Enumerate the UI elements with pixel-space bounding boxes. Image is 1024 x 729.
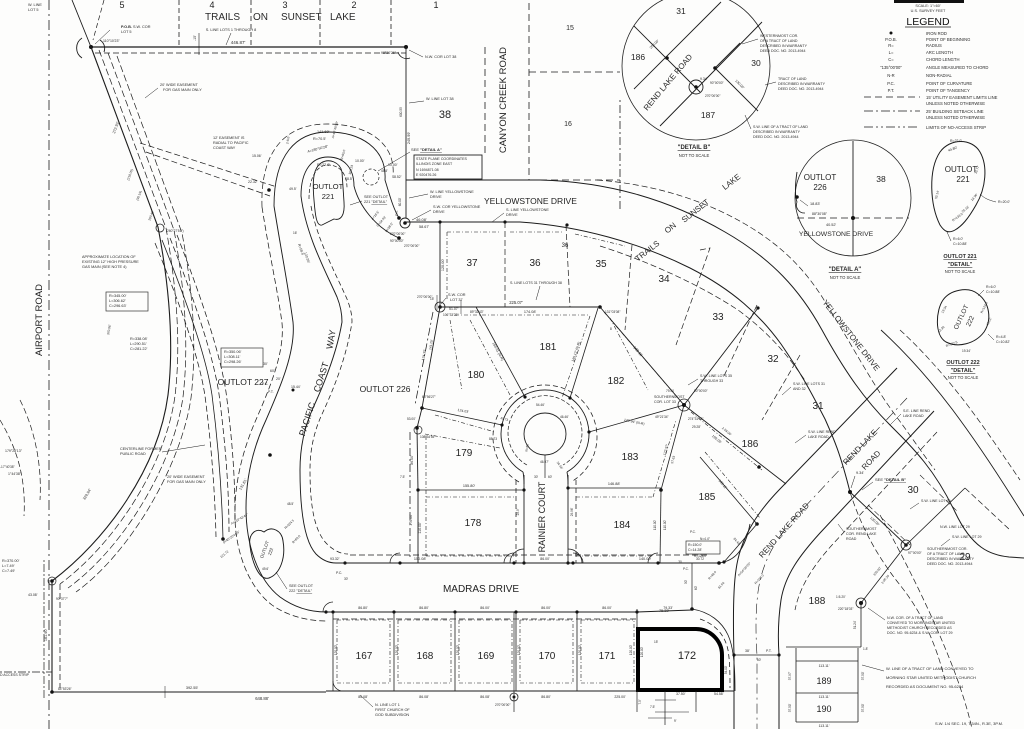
svg-text:L=306.62': L=306.62' bbox=[109, 299, 126, 303]
svg-text:P.T.: P.T. bbox=[395, 210, 399, 216]
svg-text:DEED DOC. NO. 2013-4944: DEED DOC. NO. 2013-4944 bbox=[753, 135, 799, 139]
svg-text:86.08': 86.08' bbox=[419, 695, 429, 699]
svg-text:120.00': 120.00' bbox=[640, 646, 644, 657]
svg-text:NOT TO SCALE: NOT TO SCALE bbox=[679, 153, 710, 158]
svg-text:DEED DOC. NO. 2013-4944: DEED DOC. NO. 2013-4944 bbox=[760, 49, 806, 53]
svg-text:171: 171 bbox=[599, 651, 616, 662]
svg-text:"DETAIL A": "DETAIL A" bbox=[829, 267, 862, 273]
svg-text:86.00': 86.00' bbox=[541, 606, 551, 610]
svg-text:WESTERNMOST COR.: WESTERNMOST COR. bbox=[760, 34, 798, 38]
svg-text:NOT TO SCALE: NOT TO SCALE bbox=[830, 275, 861, 280]
svg-text:222 "DETAIL": 222 "DETAIL" bbox=[289, 589, 313, 593]
svg-text:98°30'26": 98°30'26" bbox=[381, 51, 397, 55]
svg-text:90°00'00": 90°00'00" bbox=[694, 389, 708, 393]
svg-text:S.W. LINE REND: S.W. LINE REND bbox=[808, 430, 836, 434]
svg-text:51.24': 51.24' bbox=[853, 620, 857, 629]
svg-text:N. LINE LOT 1: N. LINE LOT 1 bbox=[375, 703, 400, 707]
svg-text:120.00': 120.00' bbox=[578, 644, 582, 655]
svg-text:TRACT OF LAND: TRACT OF LAND bbox=[778, 77, 807, 81]
svg-text:186: 186 bbox=[631, 52, 645, 62]
svg-text:OUTLOT 222: OUTLOT 222 bbox=[946, 360, 979, 366]
svg-text:46.08': 46.08' bbox=[416, 217, 427, 222]
svg-text:7.5': 7.5' bbox=[650, 705, 655, 709]
svg-text:120.00': 120.00' bbox=[517, 644, 521, 655]
svg-text:OUTLOT 226: OUTLOT 226 bbox=[360, 384, 411, 394]
svg-text:86.00': 86.00' bbox=[480, 606, 490, 610]
svg-text:DOC. NO. 95-6234 & S.W. COR. L: DOC. NO. 95-6234 & S.W. COR. LOT 29 bbox=[887, 631, 952, 635]
svg-text:7.5': 7.5' bbox=[638, 699, 642, 704]
svg-text:COAST WAY: COAST WAY bbox=[213, 146, 236, 150]
svg-text:225.07': 225.07' bbox=[509, 300, 523, 305]
svg-text:R=150.0': R=150.0' bbox=[688, 543, 702, 547]
svg-text:4: 4 bbox=[209, 0, 214, 10]
svg-text:90°00'00": 90°00'00" bbox=[390, 239, 404, 243]
svg-text:LAKE ROAD: LAKE ROAD bbox=[903, 414, 924, 418]
svg-text:C=10.88': C=10.88' bbox=[986, 290, 1000, 294]
svg-text:C=: C= bbox=[888, 57, 894, 62]
svg-text:37.50': 37.50' bbox=[861, 671, 865, 680]
svg-text:221: 221 bbox=[322, 192, 335, 201]
svg-text:PUBLIC ROAD: PUBLIC ROAD bbox=[120, 452, 146, 456]
svg-text:184: 184 bbox=[614, 520, 631, 531]
svg-text:180: 180 bbox=[468, 370, 485, 381]
svg-text:AND 32: AND 32 bbox=[793, 387, 806, 391]
svg-text:31: 31 bbox=[812, 401, 824, 412]
svg-text:CONVEYED TO MORNINGSTAR UNITED: CONVEYED TO MORNINGSTAR UNITED bbox=[887, 621, 955, 625]
svg-text:270°00'00": 270°00'00" bbox=[417, 295, 432, 299]
svg-text:34: 34 bbox=[658, 274, 670, 285]
svg-text:37.50': 37.50' bbox=[676, 692, 686, 696]
svg-text:58.67': 58.67' bbox=[419, 225, 430, 229]
svg-text:C=7.49': C=7.49' bbox=[2, 569, 15, 573]
svg-text:249.99': 249.99' bbox=[407, 132, 411, 145]
svg-text:P.C.: P.C. bbox=[336, 571, 342, 575]
svg-text:150.08': 150.08' bbox=[414, 557, 427, 561]
svg-text:45.5': 45.5' bbox=[381, 169, 388, 173]
svg-text:DRIVE: DRIVE bbox=[506, 213, 518, 217]
svg-text:CHORD LENGTH: CHORD LENGTH bbox=[926, 57, 960, 62]
svg-text:N-R: N-R bbox=[887, 73, 894, 78]
svg-text:110.00': 110.00' bbox=[663, 520, 667, 531]
svg-text:167: 167 bbox=[356, 651, 373, 662]
svg-text:MADRAS DRIVE: MADRAS DRIVE bbox=[443, 584, 519, 595]
svg-text:31: 31 bbox=[676, 6, 686, 16]
svg-text:120.00': 120.00' bbox=[395, 644, 399, 655]
svg-text:W. LINE OF A TRACT OF LAND CON: W. LINE OF A TRACT OF LAND CONVEYED TO bbox=[886, 666, 974, 671]
svg-text:186: 186 bbox=[742, 439, 759, 450]
svg-text:S. LINE LOTS 31 THROUGH 38: S. LINE LOTS 31 THROUGH 38 bbox=[510, 281, 562, 285]
svg-text:120.00': 120.00' bbox=[441, 259, 445, 272]
svg-text:ON: ON bbox=[253, 12, 268, 23]
svg-text:N 1694871.08: N 1694871.08 bbox=[416, 168, 439, 172]
svg-text:648.88': 648.88' bbox=[255, 696, 269, 701]
svg-text:LOT 5: LOT 5 bbox=[121, 30, 131, 34]
svg-text:R=: R= bbox=[888, 43, 894, 48]
svg-text:110.00': 110.00' bbox=[653, 520, 657, 531]
svg-text:270°00'00": 270°00'00" bbox=[705, 94, 720, 98]
svg-text:FIRST CHURCH OF: FIRST CHURCH OF bbox=[375, 708, 410, 712]
svg-text:46.46': 46.46' bbox=[560, 415, 569, 419]
svg-text:48.5': 48.5' bbox=[287, 502, 294, 506]
svg-text:L=290.51': L=290.51' bbox=[130, 342, 147, 346]
svg-text:POINT OF CURVATURE: POINT OF CURVATURE bbox=[926, 81, 972, 86]
svg-text:ILLINOIS ZONE EAST: ILLINOIS ZONE EAST bbox=[416, 162, 453, 166]
svg-text:"DETAIL B": "DETAIL B" bbox=[678, 145, 711, 151]
svg-text:R=22.0': R=22.0' bbox=[950, 139, 962, 143]
svg-text:R=12a.0: R=12a.0 bbox=[694, 554, 706, 558]
svg-text:110.00': 110.00' bbox=[418, 522, 422, 533]
svg-text:DEED DOC. NO. 2013-4944: DEED DOC. NO. 2013-4944 bbox=[927, 562, 973, 566]
svg-text:30': 30' bbox=[344, 577, 349, 581]
svg-text:P.T.: P.T. bbox=[268, 390, 274, 394]
svg-text:176.00': 176.00' bbox=[409, 514, 413, 526]
svg-text:-15': -15' bbox=[193, 35, 197, 41]
svg-text:86.08': 86.08' bbox=[358, 695, 368, 699]
svg-text:131°03'08": 131°03'08" bbox=[605, 310, 620, 314]
svg-text:182: 182 bbox=[608, 376, 625, 387]
svg-text:89°32'43": 89°32'43" bbox=[470, 310, 484, 314]
svg-text:29.28': 29.28' bbox=[692, 425, 701, 429]
svg-text:LEGEND: LEGEND bbox=[906, 16, 950, 28]
svg-text:113.11': 113.11' bbox=[819, 664, 830, 668]
svg-text:30': 30' bbox=[263, 362, 268, 366]
svg-text:SEE "DETAIL A": SEE "DETAIL A" bbox=[411, 147, 442, 152]
svg-text:D ACCESS STRIP: D ACCESS STRIP bbox=[0, 673, 30, 677]
svg-text:20' WIDE EASEMENT: 20' WIDE EASEMENT bbox=[160, 83, 199, 87]
svg-text:RADIAL TO PACIFIC: RADIAL TO PACIFIC bbox=[213, 141, 249, 145]
svg-text:C=14.28': C=14.28' bbox=[688, 548, 702, 552]
svg-text:120.00': 120.00' bbox=[456, 644, 460, 655]
svg-text:15.44': 15.44' bbox=[291, 385, 301, 389]
svg-text:R=4.8': R=4.8' bbox=[996, 335, 1006, 339]
svg-text:FOR GAS MAIN ONLY: FOR GAS MAIN ONLY bbox=[167, 480, 206, 484]
svg-text:181: 181 bbox=[540, 342, 557, 353]
svg-text:R=20.0': R=20.0' bbox=[998, 200, 1010, 204]
svg-text:GAS MAIN (SEE NOTE 4): GAS MAIN (SEE NOTE 4) bbox=[82, 265, 127, 269]
svg-text:30: 30 bbox=[751, 58, 761, 68]
svg-text:R=6.0': R=6.0' bbox=[953, 237, 963, 241]
svg-text:RAINIER COURT: RAINIER COURT bbox=[537, 481, 547, 552]
svg-text:YELLOWSTONE DRIVE: YELLOWSTONE DRIVE bbox=[484, 196, 577, 206]
svg-text:18.83': 18.83' bbox=[810, 202, 821, 206]
svg-text:30: 30 bbox=[678, 560, 682, 564]
svg-text:35: 35 bbox=[595, 259, 607, 270]
svg-text:93.32': 93.32' bbox=[330, 557, 340, 561]
svg-text:ROAD: ROAD bbox=[846, 537, 857, 541]
svg-text:S. LINE LOTS 1 THROUGH 8: S. LINE LOTS 1 THROUGH 8 bbox=[206, 28, 257, 32]
svg-text:36: 36 bbox=[529, 258, 541, 269]
svg-text:15.06': 15.06' bbox=[252, 154, 262, 158]
svg-text:188: 188 bbox=[809, 596, 826, 607]
svg-text:DESCRIBED IN WARRANTY: DESCRIBED IN WARRANTY bbox=[778, 82, 826, 86]
svg-text:SOUTHERNMOST COR.: SOUTHERNMOST COR. bbox=[927, 547, 967, 551]
svg-text:LAKE: LAKE bbox=[330, 12, 356, 23]
svg-text:P.T.: P.T. bbox=[888, 88, 895, 93]
svg-text:90°37'7": 90°37'7" bbox=[56, 597, 68, 601]
svg-text:155.80': 155.80' bbox=[463, 484, 476, 488]
svg-text:40.52': 40.52' bbox=[826, 223, 837, 227]
svg-text:OUTLOT 221: OUTLOT 221 bbox=[943, 254, 976, 260]
svg-text:CENTERLINE FORMER: CENTERLINE FORMER bbox=[120, 447, 162, 451]
svg-text:10.00': 10.00' bbox=[355, 159, 365, 163]
svg-text:STATE PLANE COORDINATES: STATE PLANE COORDINATES bbox=[416, 157, 468, 161]
svg-text:NOT TO SCALE: NOT TO SCALE bbox=[945, 269, 976, 274]
svg-text:270°00'00": 270°00'00" bbox=[390, 232, 405, 236]
svg-text:P.O.B.: P.O.B. bbox=[885, 37, 897, 42]
svg-text:NOT TO SCALE: NOT TO SCALE bbox=[948, 375, 979, 380]
svg-text:R=370.00': R=370.00' bbox=[2, 559, 20, 563]
svg-text:ANGLE MEASURED TO CHORD: ANGLE MEASURED TO CHORD bbox=[926, 65, 988, 70]
svg-text:86.80': 86.80' bbox=[358, 606, 368, 610]
svg-text:179: 179 bbox=[456, 448, 473, 459]
svg-text:S.W. LINE OF A TRACT OF LAND: S.W. LINE OF A TRACT OF LAND bbox=[753, 125, 808, 129]
svg-text:22.32': 22.32' bbox=[248, 180, 258, 184]
svg-text:8: 8 bbox=[610, 327, 612, 331]
svg-text:60': 60' bbox=[270, 369, 275, 373]
svg-text:86.00': 86.00' bbox=[602, 606, 612, 610]
svg-text:S.W. COR: S.W. COR bbox=[448, 293, 466, 297]
svg-text:19.34': 19.34' bbox=[962, 349, 971, 353]
svg-text:49.6': 49.6' bbox=[262, 567, 269, 571]
svg-text:P.C.: P.C. bbox=[262, 382, 268, 386]
svg-text:1:5.20': 1:5.20' bbox=[836, 595, 846, 599]
svg-text:86.08': 86.08' bbox=[480, 695, 490, 699]
svg-text:POINT OF BEGINNING: POINT OF BEGINNING bbox=[926, 37, 970, 42]
svg-text:88.73: 88.73 bbox=[489, 437, 497, 441]
svg-text:48.52': 48.52' bbox=[392, 175, 402, 179]
svg-text:86.80': 86.80' bbox=[419, 606, 429, 610]
svg-text:P.O.B. S.W. COR: P.O.B. S.W. COR bbox=[121, 25, 151, 29]
svg-text:53.00': 53.00' bbox=[407, 417, 416, 421]
svg-text:30: 30 bbox=[907, 485, 919, 496]
svg-text:LAKE ROAD: LAKE ROAD bbox=[808, 435, 829, 439]
svg-text:29.9': 29.9' bbox=[516, 508, 520, 515]
svg-text:LIMITS OF NO-ACCESS STRIP: LIMITS OF NO-ACCESS STRIP bbox=[926, 125, 986, 130]
svg-text:N=4.4°: N=4.4° bbox=[700, 537, 711, 541]
svg-text:270°00'00": 270°00'00" bbox=[404, 244, 419, 248]
svg-text:7.5': 7.5' bbox=[400, 475, 405, 479]
svg-text:30': 30' bbox=[684, 580, 688, 585]
svg-text:FOR GAS MAIN ONLY: FOR GAS MAIN ONLY bbox=[163, 88, 202, 92]
svg-text:C=10.88': C=10.88' bbox=[953, 242, 967, 246]
svg-text:274°31'43": 274°31'43" bbox=[688, 417, 703, 421]
svg-text:32: 32 bbox=[767, 354, 779, 365]
svg-text:20': 20' bbox=[276, 377, 281, 381]
svg-text:POINT OF TANGENCY: POINT OF TANGENCY bbox=[926, 88, 970, 93]
svg-text:38: 38 bbox=[876, 174, 886, 184]
svg-text:220°18'03": 220°18'03" bbox=[838, 607, 853, 611]
svg-text:OF A TRACT OF LAND: OF A TRACT OF LAND bbox=[927, 552, 965, 556]
svg-text:79.40: 79.40 bbox=[666, 389, 674, 393]
svg-text:221 "DETAIL": 221 "DETAIL" bbox=[364, 200, 388, 204]
svg-text:SOUTHERNMOST: SOUTHERNMOST bbox=[846, 527, 877, 531]
svg-text:60': 60' bbox=[757, 658, 762, 662]
svg-text:N.W. COR LOT 38: N.W. COR LOT 38 bbox=[425, 55, 456, 59]
svg-text:R=350.06': R=350.06' bbox=[224, 350, 242, 354]
svg-text:172: 172 bbox=[678, 650, 696, 662]
svg-text:60': 60' bbox=[694, 586, 698, 591]
svg-text:37.50': 37.50' bbox=[788, 703, 792, 712]
svg-text:DESCRIBED IN WARRANTY: DESCRIBED IN WARRANTY bbox=[927, 557, 975, 561]
svg-text:86.00': 86.00' bbox=[540, 557, 550, 561]
svg-text:221: 221 bbox=[956, 175, 970, 184]
svg-text:SEE OUTLOT: SEE OUTLOT bbox=[289, 584, 314, 588]
svg-text:NON-RADIAL: NON-RADIAL bbox=[926, 73, 952, 78]
svg-text:YELLOWSTONE DRIVE: YELLOWSTONE DRIVE bbox=[799, 231, 874, 238]
svg-text:29.96': 29.96' bbox=[570, 507, 574, 516]
svg-text:"135°00'00": "135°00'00" bbox=[880, 65, 902, 70]
svg-text:49°21'34": 49°21'34" bbox=[655, 415, 669, 419]
svg-text:146.88': 146.88' bbox=[608, 482, 621, 486]
svg-text:L=7.49': L=7.49' bbox=[2, 564, 15, 568]
svg-text:33: 33 bbox=[712, 312, 724, 323]
svg-text:97°00'00": 97°00'00" bbox=[908, 551, 922, 555]
svg-text:R=345.00': R=345.00' bbox=[109, 294, 127, 298]
svg-text:U.S. SURVEY FEET: U.S. SURVEY FEET bbox=[911, 9, 946, 13]
svg-text:141.68': 141.68' bbox=[317, 130, 330, 134]
svg-text:16': 16' bbox=[293, 231, 298, 235]
svg-text:COR. REND LAKE: COR. REND LAKE bbox=[846, 532, 877, 536]
svg-text:DESCRIBED IN WARRANTY: DESCRIBED IN WARRANTY bbox=[760, 44, 808, 48]
svg-text:187: 187 bbox=[701, 110, 715, 120]
svg-text:-17°40'38": -17°40'38" bbox=[0, 465, 15, 469]
svg-text:MORNING STAR UNITED METHODIST: MORNING STAR UNITED METHODIST CHURCH bbox=[886, 675, 976, 680]
svg-text:C=296.63': C=296.63' bbox=[109, 304, 127, 308]
svg-text:W. LINE YELLOWSTONE: W. LINE YELLOWSTONE bbox=[430, 190, 474, 194]
svg-text:2: 2 bbox=[351, 0, 356, 10]
svg-text:UNLESS NOTED OTHERWISE: UNLESS NOTED OTHERWISE bbox=[926, 101, 985, 106]
svg-text:88°30'08": 88°30'08" bbox=[812, 212, 828, 216]
svg-text:RADIUS: RADIUS bbox=[926, 43, 942, 48]
svg-text:54.58': 54.58' bbox=[714, 692, 724, 696]
svg-text:392.55': 392.55' bbox=[186, 686, 199, 690]
svg-text:60.00': 60.00' bbox=[398, 197, 402, 206]
svg-text:SOUTHERNMOST: SOUTHERNMOST bbox=[654, 395, 685, 399]
svg-text:W. LINE LOT 38: W. LINE LOT 38 bbox=[426, 97, 454, 101]
svg-text:446.87': 446.87' bbox=[231, 40, 246, 45]
svg-text:25' BUILDING SETBACK LINE: 25' BUILDING SETBACK LINE bbox=[926, 109, 984, 114]
svg-text:54.00': 54.00' bbox=[724, 665, 728, 674]
svg-text:E 920476.26: E 920476.26 bbox=[416, 173, 436, 177]
svg-text:170: 170 bbox=[539, 651, 556, 662]
svg-text:"DETAIL": "DETAIL" bbox=[948, 262, 973, 268]
svg-text:54.46': 54.46' bbox=[536, 403, 545, 407]
svg-text:APPROXIMATE LOCATION OF: APPROXIMATE LOCATION OF bbox=[82, 255, 136, 259]
svg-text:S.W. LINE LOT 60: S.W. LINE LOT 60 bbox=[921, 499, 951, 503]
svg-text:90°00'00": 90°00'00" bbox=[710, 81, 724, 85]
svg-text:9.34: 9.34 bbox=[700, 77, 707, 81]
svg-text:S.W. LINE LOTS 31: S.W. LINE LOTS 31 bbox=[793, 382, 825, 386]
svg-text:OUTLOT: OUTLOT bbox=[804, 173, 837, 182]
svg-text:5: 5 bbox=[119, 0, 124, 10]
svg-text:UNLESS NOTED OTHERWISE: UNLESS NOTED OTHERWISE bbox=[926, 115, 985, 120]
svg-text:120.00': 120.00' bbox=[334, 644, 338, 655]
svg-text:183: 183 bbox=[622, 452, 639, 463]
svg-text:SUNSET: SUNSET bbox=[281, 12, 322, 23]
svg-text:63°56'27": 63°56'27" bbox=[422, 395, 436, 399]
svg-text:P.C.: P.C. bbox=[887, 81, 895, 86]
svg-text:86.80': 86.80' bbox=[541, 695, 551, 699]
svg-text:DRIVE: DRIVE bbox=[433, 210, 445, 214]
svg-text:ARC LENGTH: ARC LENGTH bbox=[926, 50, 953, 55]
svg-text:C=281.22': C=281.22' bbox=[130, 347, 148, 351]
svg-text:L=: L= bbox=[889, 50, 894, 55]
svg-text:P.C.: P.C. bbox=[690, 530, 696, 534]
svg-text:N.W. LINE LOT 29: N.W. LINE LOT 29 bbox=[940, 525, 970, 529]
svg-text:9': 9' bbox=[674, 719, 677, 723]
svg-text:S.W. COR YELLOWSTONE: S.W. COR YELLOWSTONE bbox=[433, 205, 481, 209]
svg-text:36: 36 bbox=[562, 243, 569, 249]
svg-text:S.W. 1/4 SEC. 19, T.34N., R.3E: S.W. 1/4 SEC. 19, T.34N., R.3E, 3P.M. bbox=[935, 721, 1003, 726]
svg-text:IRON ROD: IRON ROD bbox=[926, 31, 947, 36]
svg-text:178: 178 bbox=[465, 518, 482, 529]
svg-text:15': 15' bbox=[654, 640, 659, 644]
svg-text:RECORDED AS DOCUMENT NO. 95-62: RECORDED AS DOCUMENT NO. 95-6234 bbox=[886, 684, 964, 689]
svg-text:L=308.11': L=308.11' bbox=[224, 355, 241, 359]
svg-text:S.E. LINE REND: S.E. LINE REND bbox=[903, 409, 930, 413]
svg-text:226: 226 bbox=[813, 183, 827, 192]
svg-text:270°00'00": 270°00'00" bbox=[495, 703, 510, 707]
svg-text:P.T.: P.T. bbox=[766, 649, 772, 653]
svg-text:W. LINE: W. LINE bbox=[28, 3, 42, 7]
svg-text:37.50': 37.50' bbox=[861, 703, 865, 712]
svg-text:20' WIDE EASEMENT: 20' WIDE EASEMENT bbox=[167, 475, 206, 479]
svg-text:EXISTING 12" HIGH PRESSURE: EXISTING 12" HIGH PRESSURE bbox=[82, 260, 139, 264]
svg-text:174.08': 174.08' bbox=[524, 310, 537, 314]
svg-text:CANYON CREEK ROAD: CANYON CREEK ROAD bbox=[498, 47, 509, 153]
svg-text:R=22.0': R=22.0' bbox=[317, 163, 330, 167]
svg-text:SEE "DETAIL B": SEE "DETAIL B" bbox=[875, 477, 906, 482]
svg-text:51.07': 51.07' bbox=[449, 307, 459, 311]
svg-text:168: 168 bbox=[417, 651, 434, 662]
svg-text:38': 38' bbox=[745, 649, 750, 653]
svg-text:190: 190 bbox=[816, 704, 831, 714]
svg-text:225.00': 225.00' bbox=[614, 695, 626, 699]
svg-text:16: 16 bbox=[564, 121, 572, 128]
svg-text:R=70.5': R=70.5' bbox=[313, 137, 326, 141]
svg-text:OUTLOT: OUTLOT bbox=[313, 182, 344, 191]
svg-text:189: 189 bbox=[816, 676, 831, 686]
svg-text:48.5': 48.5' bbox=[345, 177, 353, 181]
svg-text:LOT 5: LOT 5 bbox=[28, 8, 38, 12]
svg-text:161.90': 161.90' bbox=[44, 629, 48, 642]
svg-text:86.00': 86.00' bbox=[410, 455, 414, 465]
svg-text:SCALE: 1"=60': SCALE: 1"=60' bbox=[915, 4, 940, 8]
svg-text:169: 169 bbox=[478, 651, 495, 662]
svg-text:10.00': 10.00' bbox=[388, 163, 398, 167]
svg-text:S. LINE YELLOWSTONE: S. LINE YELLOWSTONE bbox=[506, 208, 549, 212]
svg-text:12' EASEMENT IS: 12' EASEMENT IS bbox=[213, 136, 245, 140]
svg-text:15: 15 bbox=[566, 25, 574, 32]
svg-text:113.11': 113.11' bbox=[819, 695, 830, 699]
svg-text:(260°27'51"): (260°27'51") bbox=[166, 229, 184, 233]
svg-text:60': 60' bbox=[548, 475, 553, 479]
svg-text:TRAILS: TRAILS bbox=[205, 12, 240, 23]
svg-text:C=298.26': C=298.26' bbox=[224, 360, 242, 364]
svg-text:N.W. COR. OF A TRACT OF LAND: N.W. COR. OF A TRACT OF LAND bbox=[887, 616, 944, 620]
svg-text:37.97': 37.97' bbox=[788, 671, 792, 680]
svg-text:"DETAIL": "DETAIL" bbox=[951, 368, 976, 374]
svg-text:1°44'38": 1°44'38" bbox=[8, 472, 22, 476]
svg-text:LOT 37: LOT 37 bbox=[450, 298, 463, 302]
svg-text:1.8': 1.8' bbox=[863, 647, 868, 651]
svg-text:113.11': 113.11' bbox=[819, 724, 830, 728]
svg-text:37: 37 bbox=[466, 258, 478, 269]
svg-text:179°28'13": 179°28'13" bbox=[5, 449, 23, 453]
svg-text:R=6.0': R=6.0' bbox=[986, 285, 996, 289]
svg-text:110°10'23": 110°10'23" bbox=[103, 39, 120, 43]
svg-text:75.33': 75.33' bbox=[659, 609, 670, 613]
